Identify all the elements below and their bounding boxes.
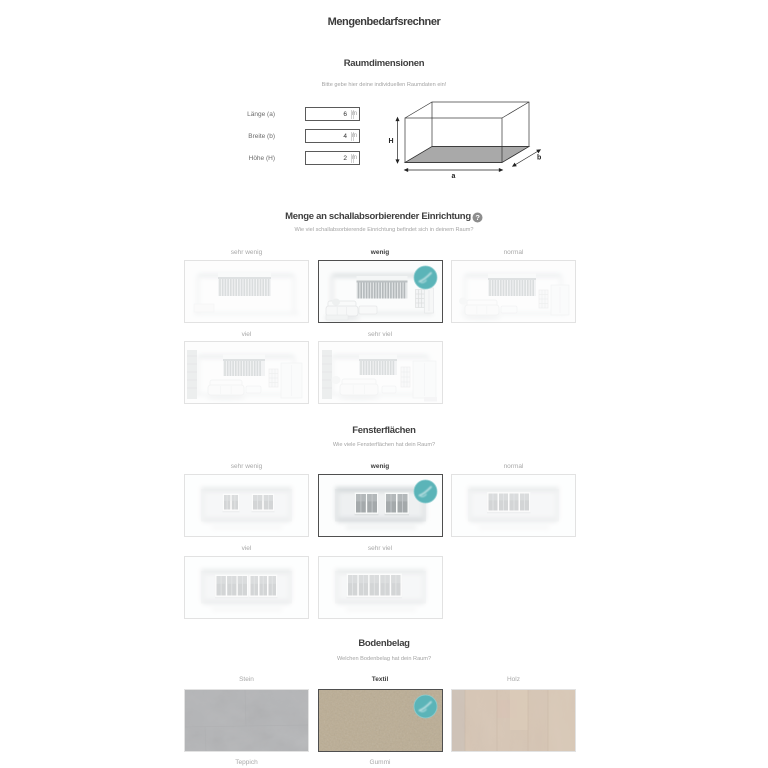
svg-text:a: a	[452, 173, 456, 180]
svg-text:H: H	[389, 138, 394, 145]
svg-text:?: ?	[476, 213, 481, 222]
svg-text:b: b	[537, 155, 541, 162]
